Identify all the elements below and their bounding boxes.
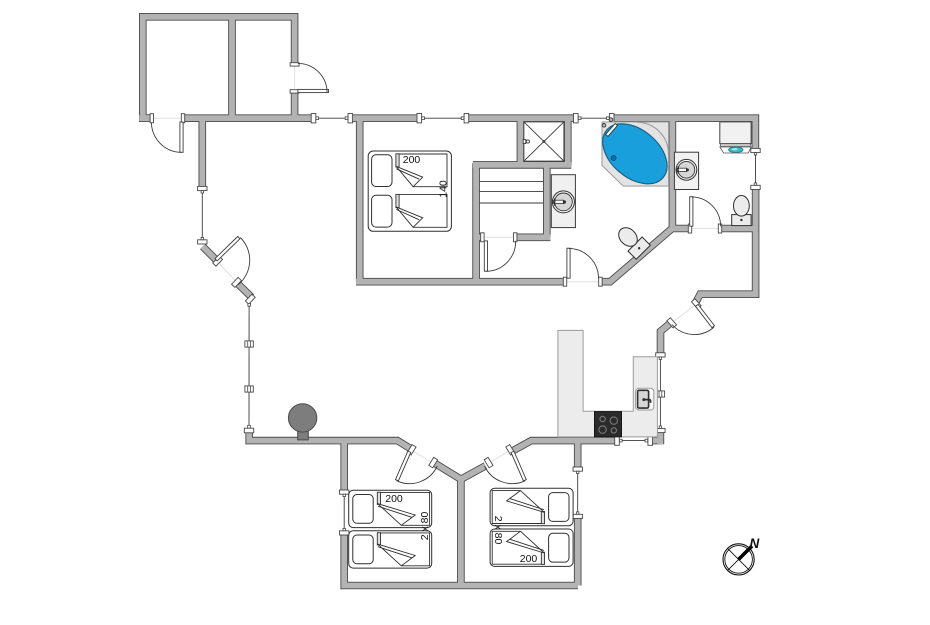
svg-text:2 x 80: 2 x 80 bbox=[419, 512, 431, 541]
svg-text:200: 200 bbox=[403, 154, 421, 166]
svg-text:140: 140 bbox=[437, 180, 449, 198]
svg-text:2 x 80: 2 x 80 bbox=[492, 516, 504, 545]
svg-text:N: N bbox=[750, 536, 760, 551]
svg-text:200: 200 bbox=[520, 553, 538, 565]
svg-text:200: 200 bbox=[385, 493, 403, 505]
